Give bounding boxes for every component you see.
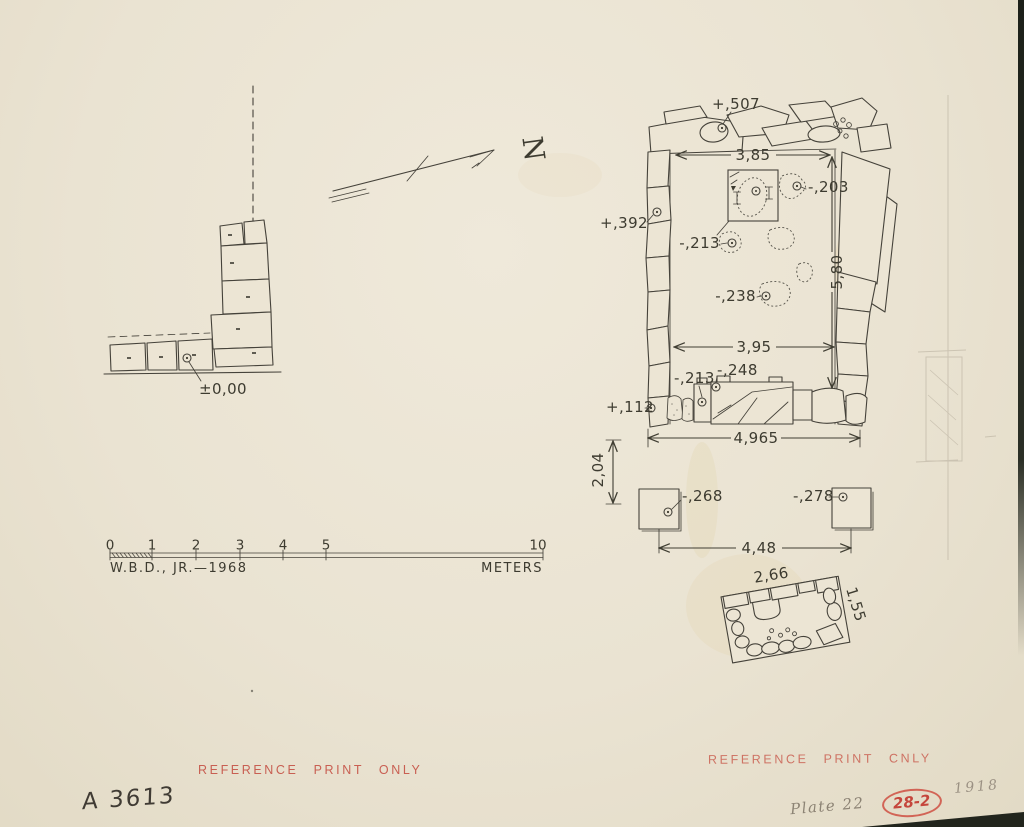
scale-unit-label: METERS [481,561,543,576]
scale-tick-4: 4 [279,538,288,554]
elev-top-label: +,507 [712,95,760,113]
elev-west-label: +,392 [600,214,648,232]
pillar-left [639,489,679,529]
pillar-right [832,488,871,528]
elev-bench-left-label: -,213 [674,369,715,387]
pillars-group: 2,04 -,268 -,278 4,48 [589,440,873,557]
elev-bench-label: -,248 [717,361,758,379]
elev-center-label: -,238 [715,287,756,305]
scale-tick-10: 10 [529,538,546,554]
main-structure-plan: +,507 -,203 +,392 -,213 -,238 -,248 -,21… [600,95,897,447]
basin-installation [717,170,778,235]
site-plan-drawing: ±0,00 N [0,0,1024,827]
dim-offset-label: 2,04 [589,453,607,488]
dim-height-label: 5,80 [828,255,846,290]
scale-bar: 0 1 2 3 4 5 10 W.B.D., JR.—1968 METERS [106,538,547,577]
dim-top-label: 3,85 [736,146,771,164]
north-letter: N [515,134,551,163]
stray-mark [251,690,253,692]
scale-tick-5: 5 [322,538,331,554]
scan-edge-right [1018,0,1024,656]
dim-slab-height-label: 1,55 [842,585,869,624]
scale-tick-2: 2 [192,538,201,554]
elev-sw-label: +,112 [606,398,654,416]
scan-edge-bottom-right [862,812,1024,827]
elev-pillar-left-label: -,268 [682,487,723,505]
scale-tick-3: 3 [236,538,245,554]
scale-tick-1: 1 [148,538,157,554]
west-wall-plan: ±0,00 [104,86,281,398]
north-arrow: N [329,134,551,202]
elev-pillar-right-label: -,278 [793,487,834,505]
scanned-plate: ±0,00 N [0,0,1024,827]
reference-stamp-left: REFERENCE PRINT ONLY [198,763,422,777]
elev-center-upper-label: -,213 [679,234,720,252]
datum-elevation-label: ±0,00 [199,380,247,398]
dim-bottom-label: 4,965 [734,429,779,447]
scale-tick-0: 0 [106,538,115,554]
pencil-ghost-lines [916,95,996,560]
draftsman-credit: W.B.D., JR.—1968 [110,561,248,576]
dim-inner-label: 3,95 [737,338,772,356]
reference-stamp-right: REFERENCE PRINT CNLY [708,751,932,767]
elev-ne-label: -,203 [808,178,849,196]
dim-spacing-label: 4,48 [742,539,777,557]
